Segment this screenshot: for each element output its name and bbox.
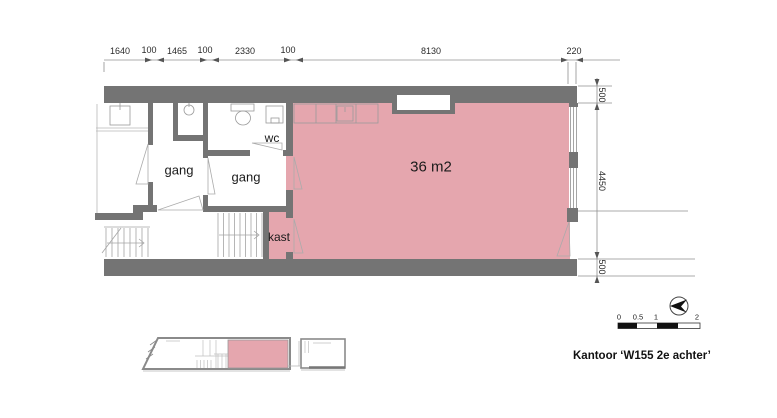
wall-top: [104, 86, 577, 103]
north-arrow-icon: [670, 297, 688, 315]
sink-counter-left: [110, 103, 130, 125]
floorplan-sheet: 1640 100 1465 100 2330 100 8130 220 500 …: [0, 0, 777, 418]
dim-top-100a: 100: [141, 45, 156, 55]
dim-right-500-bottom: 500: [597, 259, 607, 274]
door-gang-right: [208, 158, 215, 194]
dim-top-8130: 8130: [421, 46, 441, 56]
dim-top-1465: 1465: [167, 46, 187, 56]
toilet: [231, 104, 254, 125]
door-gang-left: [136, 144, 148, 184]
room-fills: [269, 103, 570, 259]
dim-top-2330: 2330: [235, 46, 255, 56]
scale-label-05: 0.5: [633, 313, 643, 322]
room-label-kast: kast: [268, 230, 290, 244]
scale-label-2: 2: [695, 313, 699, 322]
office-room-fill: [293, 103, 570, 259]
room-label-wc: wc: [265, 131, 280, 145]
room-label-gang-right: gang: [232, 170, 261, 185]
door-stair-hall: [158, 196, 203, 210]
dim-top-1640: 1640: [110, 46, 130, 56]
wall-niche: [392, 95, 455, 114]
stair-middle: [218, 213, 262, 257]
sheet-title: Kantoor ‘W155 2e achter’: [573, 350, 711, 362]
dim-top-220: 220: [566, 46, 581, 56]
room-area-label: 36 m2: [410, 159, 452, 176]
boiler-cabinet: [266, 106, 283, 123]
dim-top-100b: 100: [197, 45, 212, 55]
round-basin: [184, 103, 194, 115]
scale-label-0: 0: [617, 313, 621, 322]
dim-top-100c: 100: [280, 45, 295, 55]
dim-right-4450: 4450: [597, 171, 607, 191]
scale-label-1: 1: [654, 313, 658, 322]
scale-bar: [618, 323, 700, 329]
dim-right-500-top: 500: [597, 87, 607, 102]
room-label-gang-left: gang: [165, 163, 194, 178]
key-plan-highlight: [228, 340, 288, 368]
wall-bottom: [104, 259, 577, 276]
neighbour-outline-lines: [96, 104, 148, 213]
key-plan-thumbnail: [143, 338, 345, 371]
stair-left: [102, 227, 150, 257]
